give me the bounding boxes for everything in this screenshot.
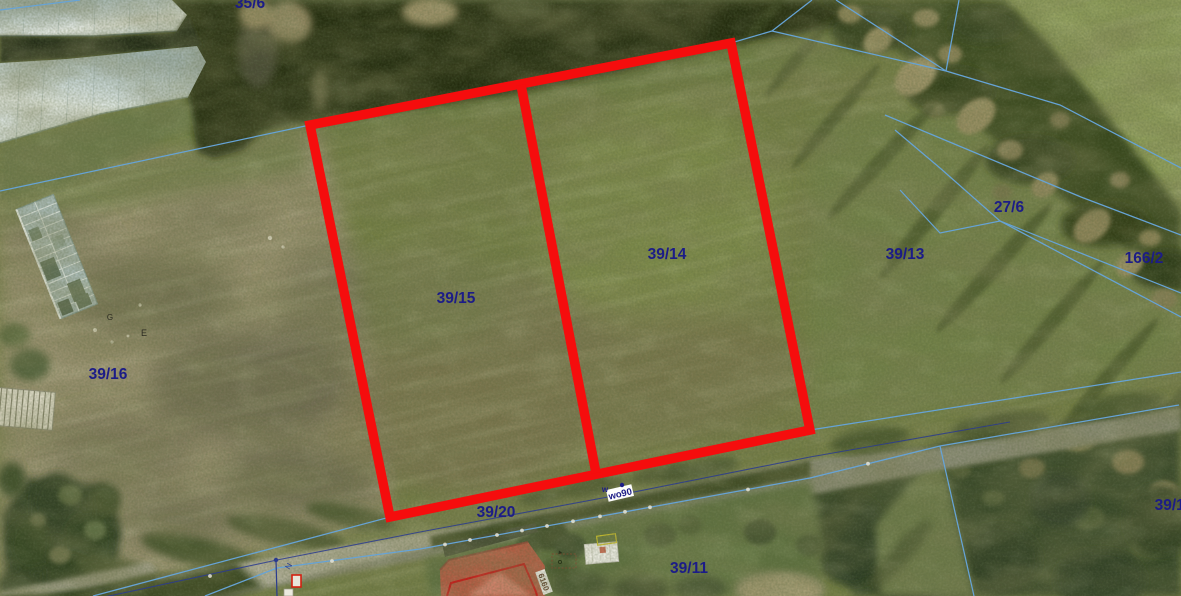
svg-text:E: E [141,328,147,338]
svg-text:39/20: 39/20 [477,504,516,521]
svg-text:G: G [107,313,113,322]
svg-text:39/13: 39/13 [886,246,925,263]
svg-text:39/11: 39/11 [670,560,708,577]
svg-text:39/15: 39/15 [437,290,476,307]
svg-text:27/6: 27/6 [994,199,1025,216]
svg-text:39/14: 39/14 [648,246,687,263]
svg-text:166/2: 166/2 [1125,250,1164,267]
svg-text:39/12: 39/12 [1155,497,1181,514]
svg-text:39/16: 39/16 [89,366,128,383]
svg-text:35/6: 35/6 [235,0,266,12]
svg-text:w: w [601,485,609,494]
